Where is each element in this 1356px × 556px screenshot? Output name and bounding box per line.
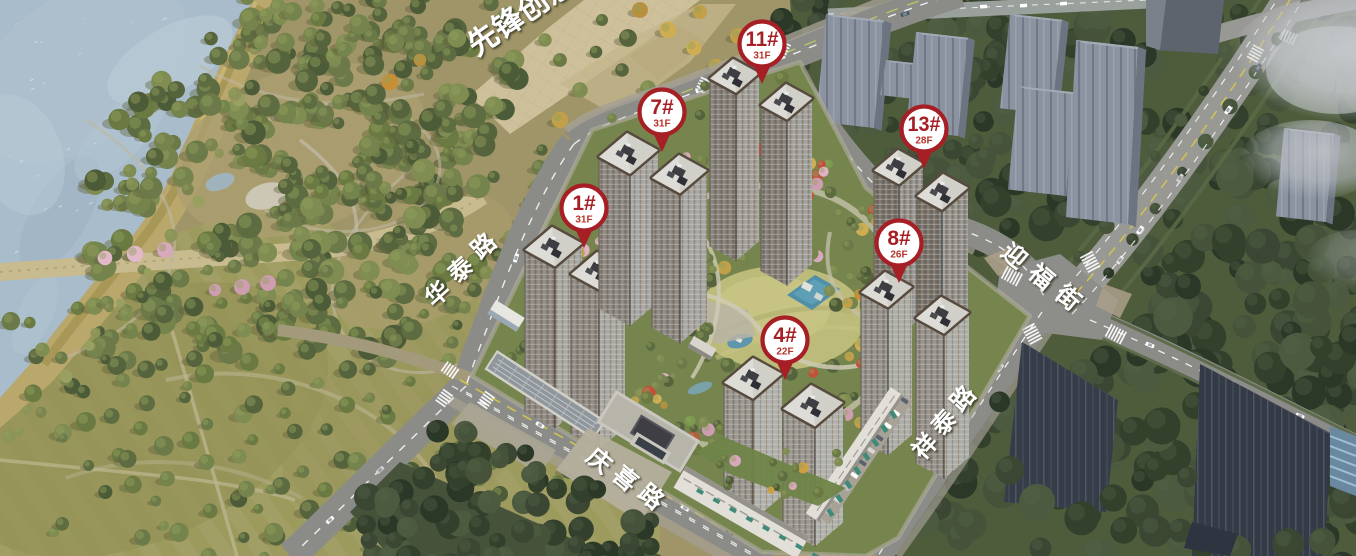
- svg-text:4#: 4#: [773, 324, 797, 347]
- svg-text:31F: 31F: [653, 119, 670, 130]
- svg-text:31F: 31F: [753, 51, 770, 62]
- svg-text:22F: 22F: [776, 347, 793, 358]
- svg-text:1#: 1#: [572, 192, 596, 215]
- svg-text:11#: 11#: [746, 28, 779, 51]
- svg-text:28F: 28F: [915, 136, 932, 147]
- svg-text:8#: 8#: [887, 227, 911, 250]
- svg-text:7#: 7#: [650, 96, 674, 119]
- svg-text:26F: 26F: [890, 250, 907, 261]
- svg-text:13#: 13#: [908, 113, 941, 136]
- svg-text:31F: 31F: [575, 215, 592, 226]
